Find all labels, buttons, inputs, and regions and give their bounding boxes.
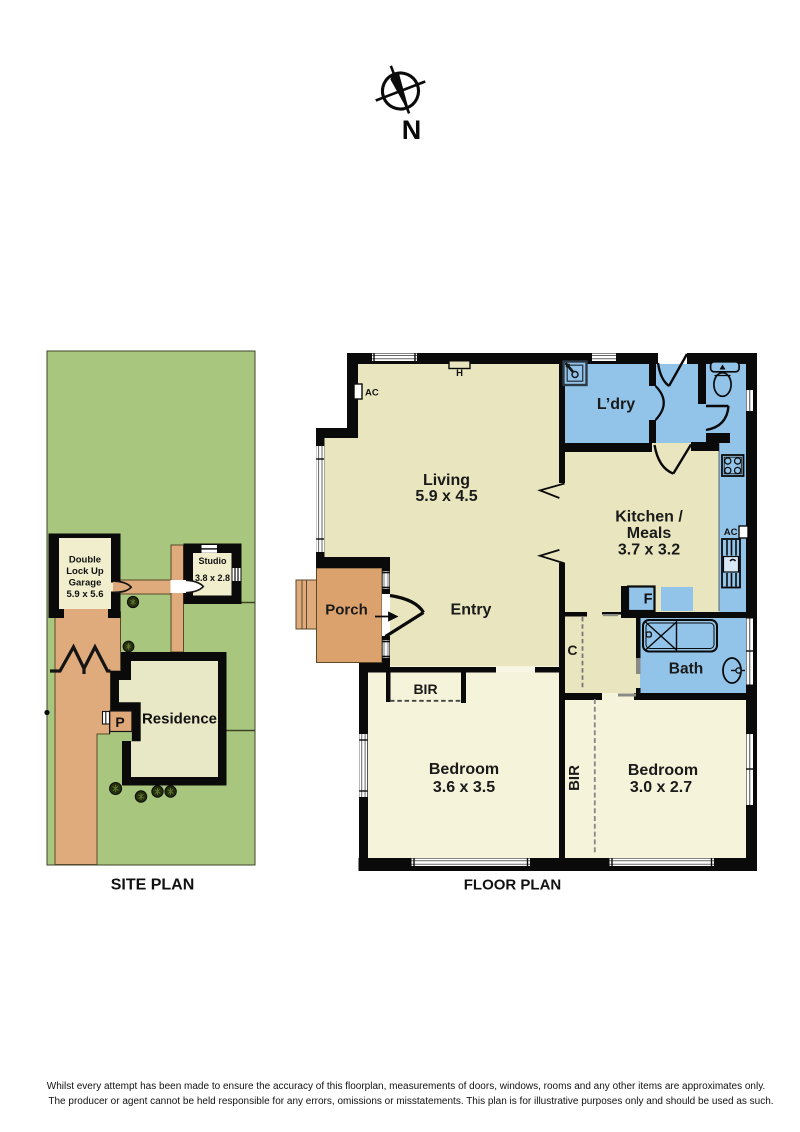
svg-text:The producer or agent cannot b: The producer or agent cannot be held res… [48,1096,773,1107]
svg-text:3.8 x 2.8: 3.8 x 2.8 [195,573,230,583]
svg-text:H: H [456,368,463,379]
svg-text:SITE PLAN: SITE PLAN [111,877,195,894]
svg-text:P: P [115,714,124,730]
svg-text:BIR: BIR [413,681,437,697]
svg-text:L’dry: L’dry [597,396,635,413]
svg-text:5.9 x 4.5: 5.9 x 4.5 [415,488,477,505]
svg-text:Living: Living [423,472,470,489]
svg-text:AC: AC [724,527,738,538]
svg-text:BIR: BIR [566,765,583,791]
svg-text:Double: Double [69,555,101,566]
svg-text:Studio: Studio [199,556,227,566]
svg-text:Bath: Bath [669,661,703,678]
svg-text:3.0 x 2.7: 3.0 x 2.7 [630,779,692,796]
svg-text:Meals: Meals [627,525,672,542]
svg-text:3.7 x 3.2: 3.7 x 3.2 [618,542,680,559]
svg-text:Entry: Entry [451,602,492,619]
svg-text:Residence: Residence [142,711,217,728]
svg-text:Bedroom: Bedroom [429,761,499,778]
svg-text:AC: AC [365,388,379,399]
svg-text:Bedroom: Bedroom [628,762,698,779]
svg-text:3.6 x 3.5: 3.6 x 3.5 [433,779,495,796]
svg-text:N: N [402,115,422,145]
svg-text:5.9 x 5.6: 5.9 x 5.6 [67,589,104,600]
svg-text:FLOOR PLAN: FLOOR PLAN [464,877,562,894]
svg-text:Porch: Porch [325,602,368,619]
svg-text:C: C [567,642,577,658]
svg-text:Garage: Garage [69,578,102,589]
svg-text:Whilst every attempt has been: Whilst every attempt has been made to en… [47,1081,766,1092]
svg-text:F: F [644,592,653,608]
svg-text:Kitchen /: Kitchen / [615,509,683,526]
svg-text:Lock Up: Lock Up [66,566,104,577]
